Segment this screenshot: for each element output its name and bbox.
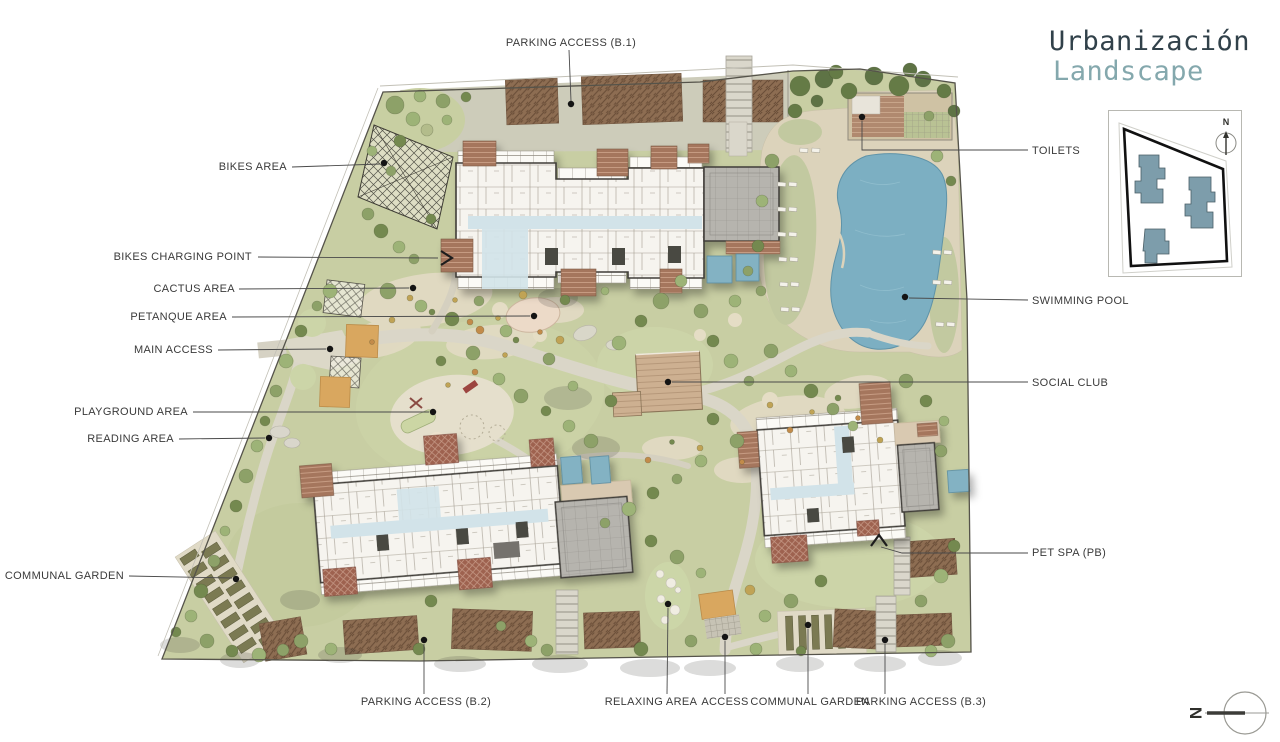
label-parking-access-b3: PARKING ACCESS (B.3) [856,696,986,708]
key-plan-inset: N [1108,110,1242,277]
building-b3-roof [897,443,939,512]
parking-strip-b1 [375,56,790,156]
label-main-access: MAIN ACCESS [134,344,213,356]
site-plan-drawing [0,0,1280,742]
label-communal-garden-left: COMMUNAL GARDEN [5,570,124,582]
label-access: ACCESS [701,696,748,708]
landscape-masterplan-sheet: PARKING ACCESS (B.1) BIKES AREA BIKES CH… [0,0,1280,742]
label-pet-spa: PET SPA (PB) [1032,547,1106,559]
label-bikes-charging-point: BIKES CHARGING POINT [114,251,252,263]
label-communal-garden-bottom: COMMUNAL GARDEN [750,696,869,708]
sheet-subtitle: Landscape [1053,56,1204,87]
building-b2-roof [555,496,633,577]
label-petanque-area: PETANQUE AREA [130,311,227,323]
label-swimming-pool: SWIMMING POOL [1032,295,1129,307]
north-arrow: N [1185,685,1277,742]
label-reading-area: READING AREA [87,433,174,445]
pet-spa-pool [947,469,969,492]
label-relaxing-area: RELAXING AREA [605,696,698,708]
north-letter: N [1187,707,1206,719]
sheet-title: Urbanización [1049,26,1250,57]
key-plan-north-letter: N [1223,117,1230,127]
label-bikes-area: BIKES AREA [219,161,287,173]
label-parking-access-b2: PARKING ACCESS (B.2) [361,696,491,708]
building-b1-roof [704,167,779,241]
key-plan-compass: N [1216,117,1236,155]
label-toilets: TOILETS [1032,145,1080,157]
label-cactus-area: CACTUS AREA [154,283,235,295]
label-social-club: SOCIAL CLUB [1032,377,1108,389]
bikes-charging-deck [441,239,473,272]
parking-ramp-b3 [876,596,896,652]
label-playground-area: PLAYGROUND AREA [74,406,188,418]
label-parking-access-b1: PARKING ACCESS (B.1) [506,37,636,49]
parking-ramp-b2 [556,590,578,654]
